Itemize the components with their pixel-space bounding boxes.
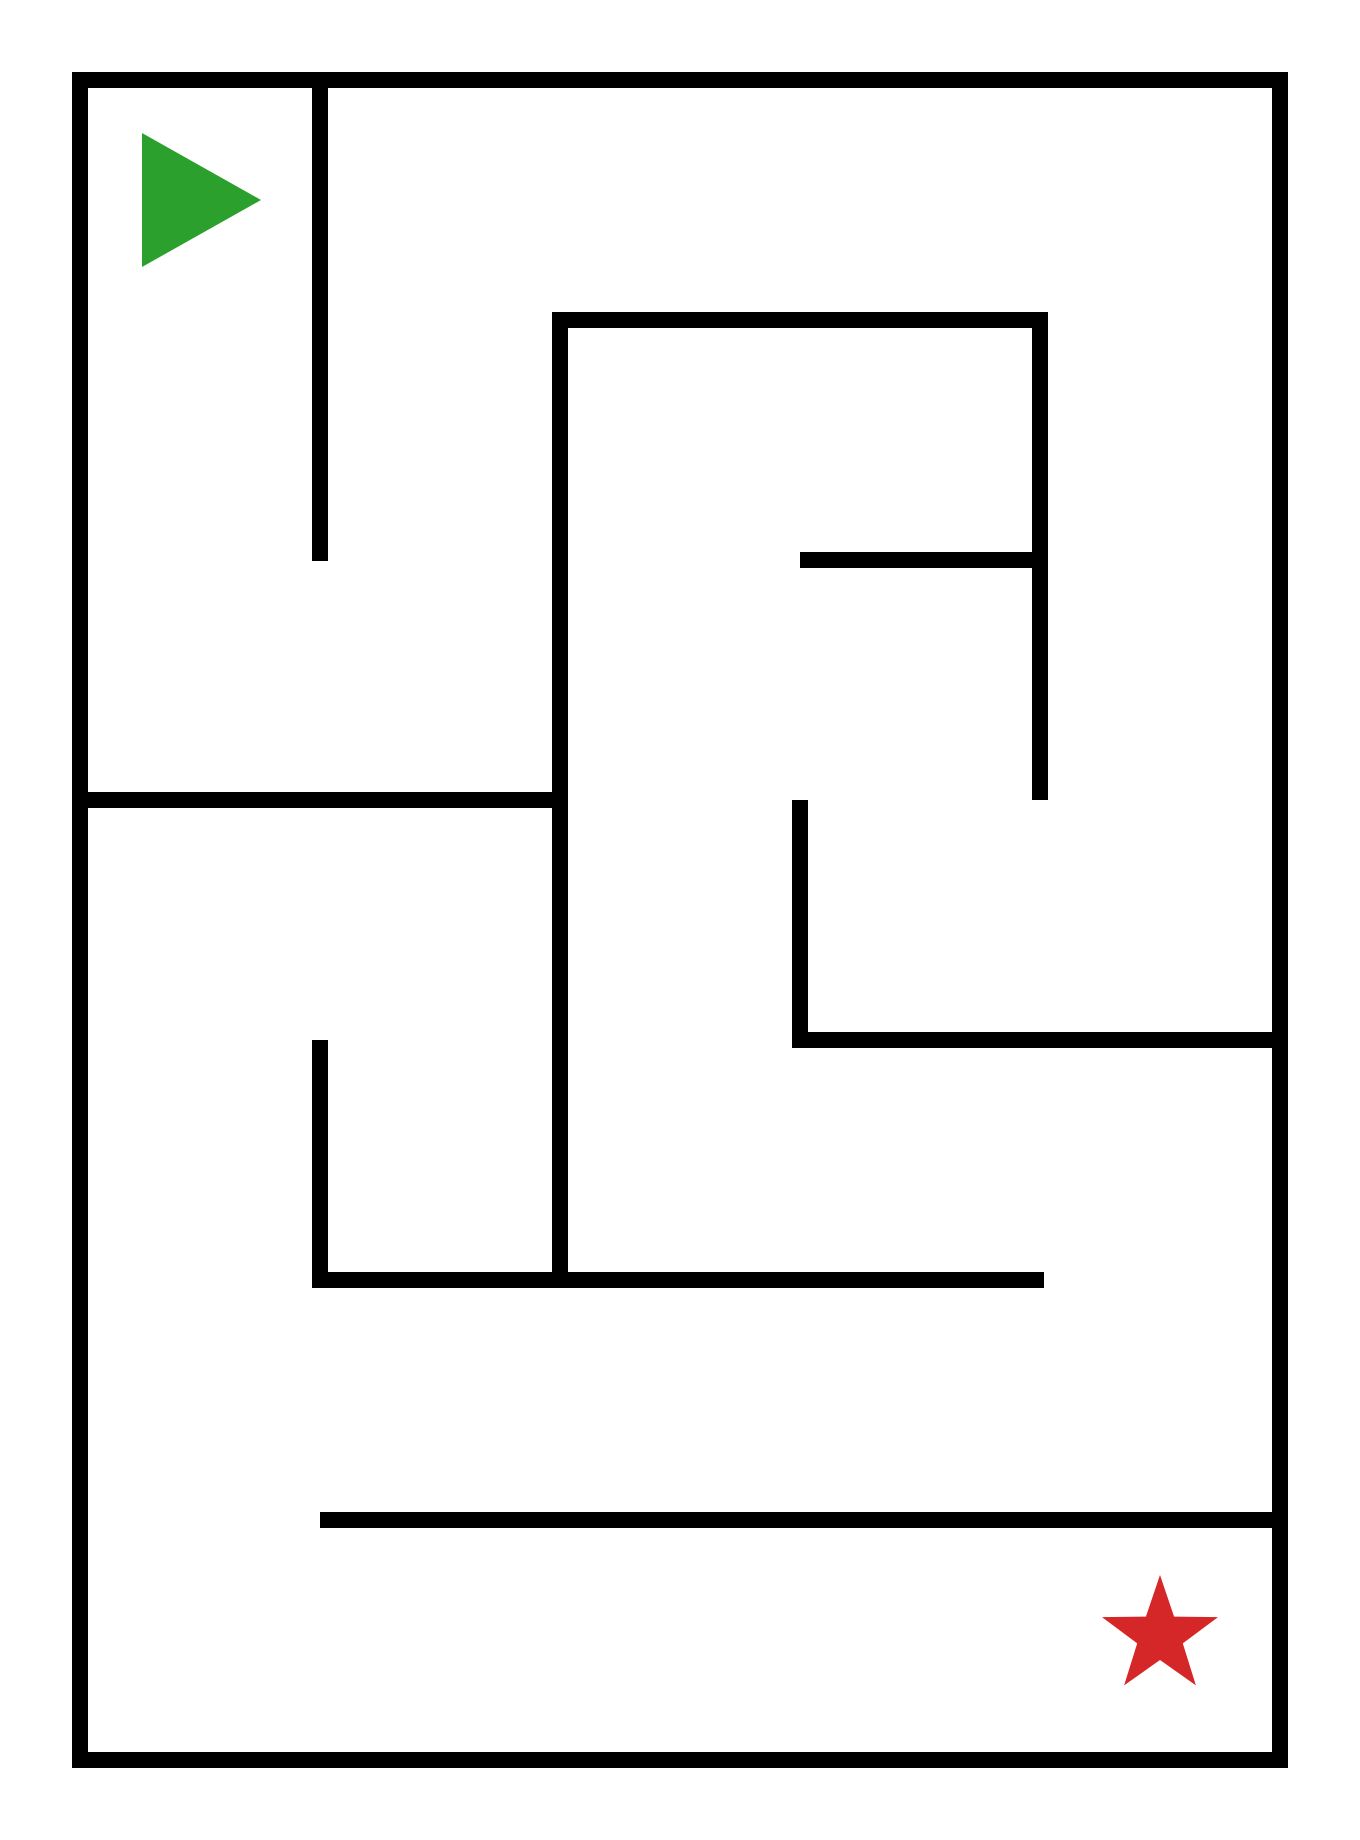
wall-h-long-lower xyxy=(312,1272,1044,1288)
maze-markers xyxy=(0,0,1360,1840)
wall-h-to-right-border xyxy=(792,1032,1288,1048)
start-triangle-icon xyxy=(142,133,261,267)
wall-h-bottom-corridor xyxy=(320,1512,1288,1528)
goal-star-icon xyxy=(1102,1575,1218,1685)
wall-v-center xyxy=(792,800,808,1048)
border-left xyxy=(72,72,88,1768)
maze-canvas xyxy=(0,0,1360,1840)
wall-v-top-column xyxy=(312,88,328,561)
border-top xyxy=(72,72,1288,88)
border-bottom xyxy=(72,1752,1288,1768)
wall-h-left-room xyxy=(88,792,568,808)
wall-h-middle-bar xyxy=(800,552,1048,568)
wall-h-inner-box-top xyxy=(552,312,1048,328)
wall-v-bottom-left xyxy=(312,1040,328,1288)
